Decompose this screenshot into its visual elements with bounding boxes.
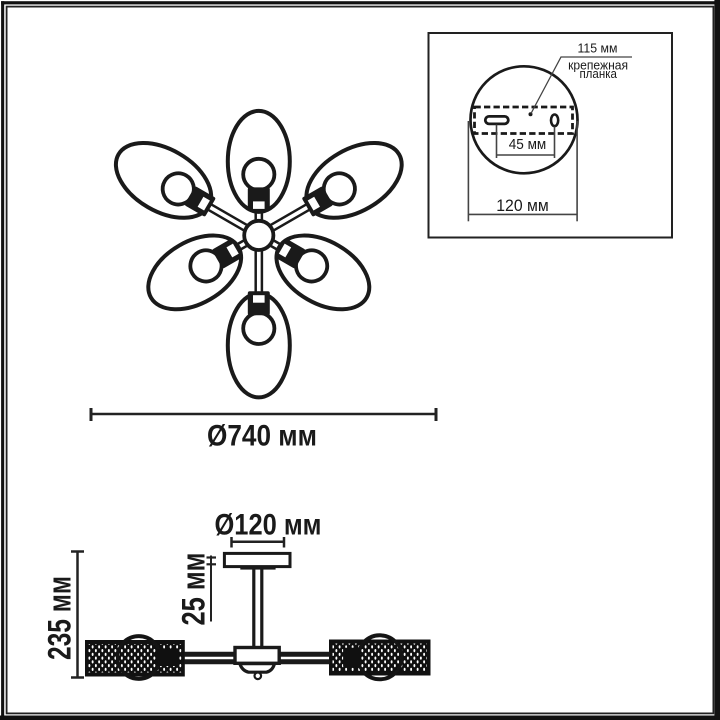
svg-text:Ø120 мм: Ø120 мм xyxy=(215,509,322,542)
svg-text:25 мм: 25 мм xyxy=(176,553,212,626)
svg-text:Ø740 мм: Ø740 мм xyxy=(207,420,317,453)
svg-text:120 мм: 120 мм xyxy=(496,196,549,215)
svg-text:45 мм: 45 мм xyxy=(509,136,547,153)
svg-text:235 мм: 235 мм xyxy=(42,576,78,660)
svg-text:планка: планка xyxy=(579,66,617,81)
svg-text:115 мм: 115 мм xyxy=(578,41,618,56)
